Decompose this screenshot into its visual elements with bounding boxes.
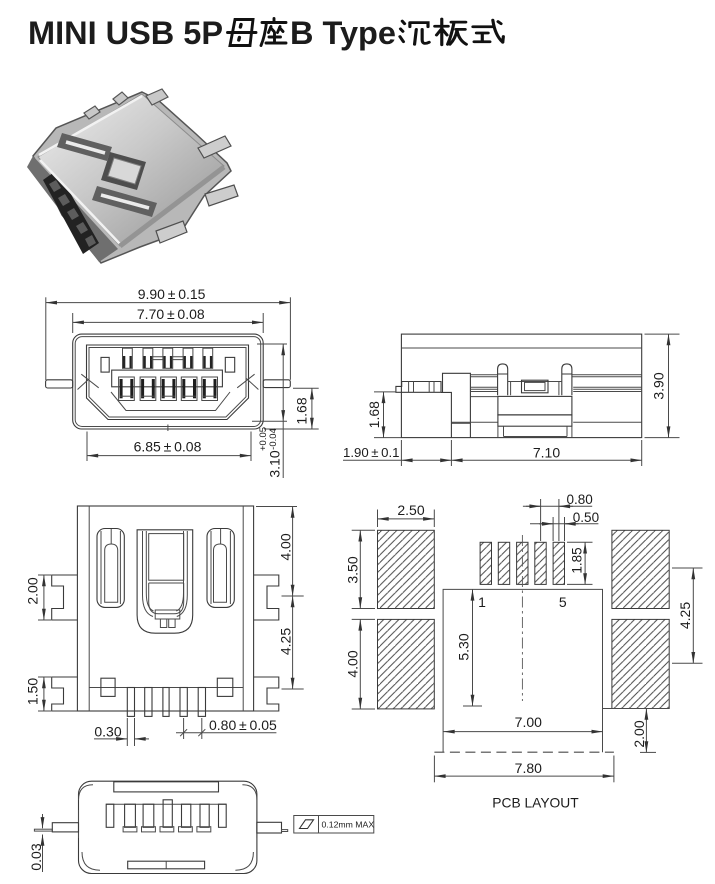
svg-text:2.00: 2.00 [25,577,41,604]
svg-text:MINI USB 5P: MINI USB 5P [28,15,223,51]
svg-text:PCB LAYOUT: PCB LAYOUT [492,796,579,811]
svg-text:0.80: 0.80 [567,492,593,507]
svg-text:1.68: 1.68 [366,401,382,428]
svg-text:4.00: 4.00 [278,533,294,560]
svg-text:3.90: 3.90 [651,372,667,399]
svg-text:3.10: 3.10 [267,450,283,477]
svg-text:2.50: 2.50 [397,502,424,518]
svg-text:1.68: 1.68 [294,397,310,424]
svg-text:0.50: 0.50 [573,510,599,525]
svg-text:6.85 ± 0.08: 6.85 ± 0.08 [134,439,202,455]
svg-text:-0.04: -0.04 [268,428,279,450]
svg-text:4.25: 4.25 [677,602,693,629]
svg-text:2.00: 2.00 [631,720,647,747]
svg-text:5.30: 5.30 [456,633,472,660]
svg-text:1: 1 [478,594,486,610]
svg-text:0.30: 0.30 [94,724,121,740]
svg-text:7.00: 7.00 [515,714,542,730]
svg-text:0.03: 0.03 [28,843,44,870]
svg-text:4.00: 4.00 [344,650,360,677]
svg-text:7.80: 7.80 [515,760,542,776]
svg-text:5: 5 [559,594,567,610]
svg-text:B Type: B Type [290,15,396,51]
svg-text:3.50: 3.50 [344,556,360,583]
svg-text:1.50: 1.50 [25,678,41,705]
svg-text:4.25: 4.25 [278,628,294,655]
svg-text:1.85: 1.85 [570,547,585,573]
svg-text:0.12mm MAX: 0.12mm MAX [322,819,375,829]
svg-text:1.90 ± 0.1: 1.90 ± 0.1 [343,445,400,460]
svg-text:0.80 ± 0.05: 0.80 ± 0.05 [209,717,277,733]
svg-text:7.70 ± 0.08: 7.70 ± 0.08 [137,306,205,322]
svg-text:9.90 ± 0.15: 9.90 ± 0.15 [138,286,206,302]
svg-text:7.10: 7.10 [533,445,560,461]
